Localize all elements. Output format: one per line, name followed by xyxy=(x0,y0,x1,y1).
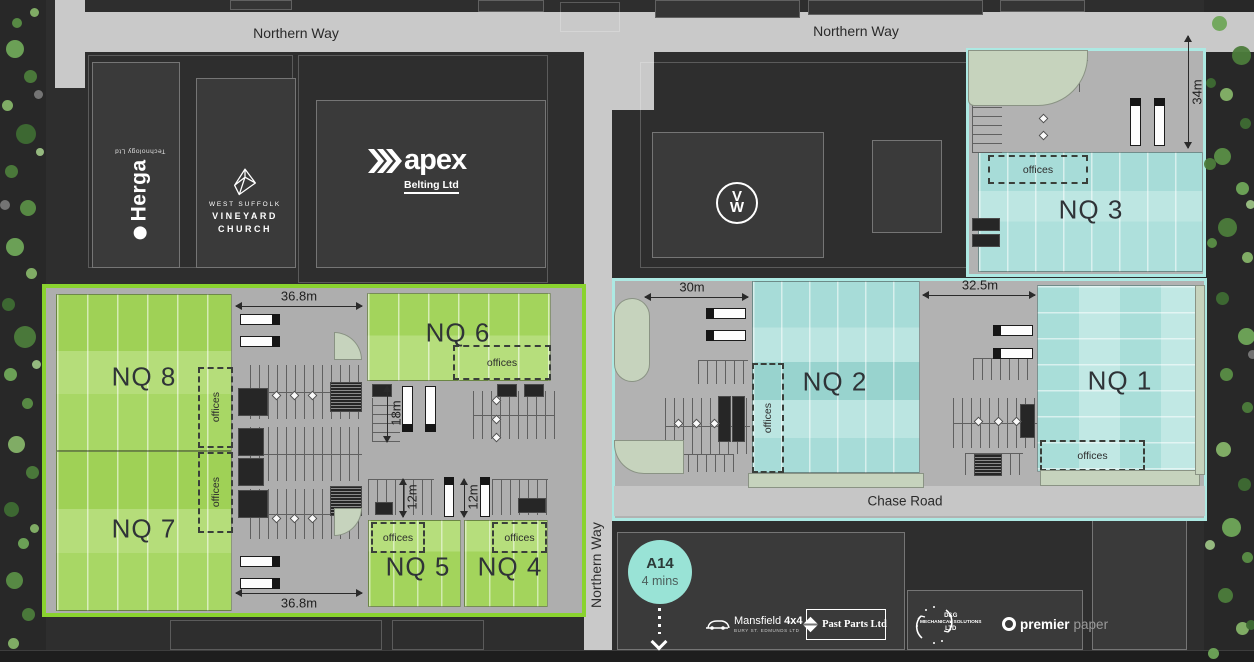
building-unnamed xyxy=(872,140,942,233)
mansfield-name: Mansfield xyxy=(734,615,781,627)
unit-nq3-offices-label: offices xyxy=(1023,164,1053,176)
landscape-area xyxy=(748,473,924,488)
unit-nq2-label: NQ 2 xyxy=(803,367,868,398)
unit-nq7-offices-label: offices xyxy=(210,477,222,507)
dim-nq4-yard: 12m xyxy=(466,484,481,509)
tree-icon xyxy=(1206,78,1216,88)
tree-icon xyxy=(34,90,43,99)
truck-cab xyxy=(425,424,436,432)
mansfield-subtitle: BURY ST. EDMUNDS LTD xyxy=(734,628,803,633)
tree-icon xyxy=(1242,552,1253,563)
tree-icon xyxy=(1222,518,1241,537)
parking-shelter xyxy=(238,388,268,416)
plot-outline xyxy=(478,0,544,12)
tree-icon xyxy=(2,100,13,111)
herga-icon xyxy=(133,226,146,239)
vw-logo: V W xyxy=(716,182,758,224)
tree-icon xyxy=(1220,368,1233,381)
truck-icon xyxy=(444,477,454,517)
bottom-edge xyxy=(0,650,1254,662)
road-stub-left xyxy=(55,0,85,88)
unit-nq2-offices-label: offices xyxy=(762,403,774,433)
tree-icon xyxy=(8,638,19,649)
truck-cab xyxy=(706,308,714,319)
tree-icon xyxy=(32,360,41,369)
road-label-northern-way-left: Northern Way xyxy=(253,25,339,41)
tree-icon xyxy=(30,8,39,17)
unit-nq5-offices: offices xyxy=(371,522,425,553)
tree-icon xyxy=(1238,478,1251,491)
plot-outline xyxy=(808,0,983,15)
dim-nq8-frontage: 36.8m xyxy=(281,289,317,304)
parking-shelter xyxy=(732,396,745,442)
past-parts-name: Past Parts Ltd xyxy=(822,619,887,630)
apex-chevrons-icon xyxy=(368,148,402,174)
dim-line-nq7-frontage xyxy=(236,593,362,594)
vw-monogram-w: W xyxy=(730,203,744,214)
dg-line1: D&G xyxy=(944,613,957,619)
tree-icon xyxy=(1216,292,1229,305)
parking-shelter xyxy=(718,396,731,442)
parking-shelter xyxy=(518,498,546,513)
tree-icon xyxy=(1242,252,1253,263)
tree-icon xyxy=(8,436,25,453)
plot-outline xyxy=(560,2,620,32)
tree-icon xyxy=(1232,46,1251,65)
truck-icon xyxy=(480,477,490,517)
parking-shelter xyxy=(238,428,264,456)
tree-icon xyxy=(6,238,24,256)
premier-paper-icon xyxy=(1002,617,1016,631)
dim-nq2-frontage: 30m xyxy=(679,280,704,295)
truck-cab xyxy=(402,424,413,432)
truck-icon xyxy=(240,578,280,589)
parking-shelter xyxy=(375,502,393,515)
plot-outline xyxy=(392,620,484,650)
truck-cab xyxy=(444,477,454,485)
plot-outline xyxy=(1000,0,1085,12)
tree-icon xyxy=(1242,402,1253,413)
tree-icon xyxy=(20,200,36,216)
landscape-area xyxy=(614,298,650,382)
tree-icon xyxy=(24,70,37,83)
tree-icon xyxy=(1238,328,1254,345)
truck-cab xyxy=(1130,98,1141,106)
tree-icon xyxy=(18,538,29,549)
unit-nq3-label: NQ 3 xyxy=(1059,195,1124,226)
parking-shelter xyxy=(974,454,1002,476)
unit-nq8-offices-label: offices xyxy=(210,392,222,422)
dim-nq7-frontage: 36.8m xyxy=(281,596,317,611)
past-parts-diamond-icon xyxy=(803,617,819,633)
truck-icon xyxy=(706,308,746,319)
parking-shelter xyxy=(972,234,1000,247)
vineyard-church-line2: VINEYARD xyxy=(212,211,278,221)
parking-bays xyxy=(473,391,555,439)
tree-icon xyxy=(1214,148,1231,165)
parking-shelter xyxy=(497,384,517,397)
tree-icon xyxy=(6,572,23,589)
parking-shelter xyxy=(972,218,1000,231)
a14-badge: A14 4 mins xyxy=(628,540,692,604)
dim-line-nq1-frontage xyxy=(923,295,1035,296)
dim-line-nq2-frontage xyxy=(645,297,748,298)
truck-cab xyxy=(993,348,1001,359)
tree-icon xyxy=(6,40,24,58)
landscape-area xyxy=(1195,285,1205,475)
a14-label: A14 xyxy=(646,555,674,574)
a14-time: 4 mins xyxy=(642,574,679,590)
unit-nq6-offices-label: offices xyxy=(487,357,517,369)
truck-icon xyxy=(1154,98,1165,146)
dg-line2: MECHANICAL SOLUTIONS xyxy=(920,620,981,625)
parking-shelter xyxy=(238,490,268,518)
vineyard-church-logo: WEST SUFFOLK VINEYARD CHURCH xyxy=(194,168,296,264)
tree-icon xyxy=(2,298,15,311)
vineyard-church-line3: CHURCH xyxy=(218,224,272,234)
tree-icon xyxy=(16,124,36,144)
road-label-chase: Chase Road xyxy=(867,494,942,509)
unit-nq4-offices-label: offices xyxy=(504,532,534,544)
parking-shelter xyxy=(1020,404,1035,438)
parking-bays xyxy=(973,358,1031,380)
unit-nq4-offices: offices xyxy=(492,522,547,553)
parking-bays xyxy=(698,360,748,384)
parking-bays xyxy=(250,427,362,481)
truck-icon xyxy=(425,386,436,432)
truck-icon xyxy=(993,348,1033,359)
apex-name: apex xyxy=(404,146,466,175)
a14-dotted-line xyxy=(658,608,661,634)
mansfield-logo: Mansfield 4x4 BURY ST. EDMUNDS LTD xyxy=(704,611,808,637)
tree-icon xyxy=(1246,620,1254,630)
unit-nq3-offices: offices xyxy=(988,155,1088,184)
tree-icon xyxy=(1236,182,1249,195)
dg-line3: LTD xyxy=(945,626,956,632)
truck-icon xyxy=(1130,98,1141,146)
tree-icon xyxy=(36,148,44,156)
truck-icon xyxy=(993,325,1033,336)
herga-name: Herga xyxy=(128,159,152,221)
mansfield-car-icon xyxy=(704,617,730,631)
premier-paper-logo: premierpaper xyxy=(1002,613,1086,635)
unit-nq2-offices: offices xyxy=(752,363,784,473)
unit-nq1-offices-label: offices xyxy=(1077,450,1107,462)
unit-nq1-label: NQ 1 xyxy=(1088,366,1153,397)
site-plan-canvas: Northern Way Northern Way Northern Way C… xyxy=(0,0,1254,662)
road-label-northern-way-right: Northern Way xyxy=(813,23,899,39)
truck-cab xyxy=(272,314,280,325)
truck-cab xyxy=(272,336,280,347)
unit-nq8-label: NQ 8 xyxy=(112,362,177,393)
dim-nq6-yard: 18m xyxy=(389,400,404,425)
unit-nq5-label: NQ 5 xyxy=(386,552,451,583)
truck-cab xyxy=(993,325,1001,336)
unit-nq5-offices-label: offices xyxy=(383,532,413,544)
tree-icon xyxy=(1204,158,1216,170)
road-northern-way-top xyxy=(55,12,1254,52)
tree-icon xyxy=(1205,540,1215,550)
apex-subtitle: Belting Ltd xyxy=(404,179,459,194)
apex-logo: apex Belting Ltd xyxy=(368,146,488,194)
vineyard-church-line1: WEST SUFFOLK xyxy=(209,201,281,208)
unit-nq7-label: NQ 7 xyxy=(112,514,177,545)
herga-logo: Herga Technology Ltd xyxy=(96,128,184,258)
plot-outline xyxy=(230,0,292,10)
truck-icon xyxy=(240,556,280,567)
tree-icon xyxy=(1220,88,1233,101)
dim-line-nq8-frontage xyxy=(236,306,362,307)
truck-cab xyxy=(272,578,280,589)
truck-cab xyxy=(272,556,280,567)
tree-icon xyxy=(5,165,18,178)
truck-cab xyxy=(1154,98,1165,106)
unit-nq6-label: NQ 6 xyxy=(426,318,491,349)
vineyard-church-star-icon xyxy=(231,168,259,198)
tree-icon xyxy=(1240,118,1251,129)
tree-icon xyxy=(30,524,39,533)
tree-icon xyxy=(4,368,17,381)
tree-icon xyxy=(22,608,35,621)
road-label-northern-way-vertical: Northern Way xyxy=(588,478,604,608)
mansfield-name-bold: 4x4 xyxy=(784,615,802,627)
unit-nq4-label: NQ 4 xyxy=(478,552,543,583)
herga-subtitle: Technology Ltd xyxy=(115,147,166,154)
premier-name-bold: premier xyxy=(1020,617,1070,632)
tree-icon xyxy=(1207,238,1217,248)
truck-cab xyxy=(706,330,714,341)
tree-icon xyxy=(0,200,10,210)
truck-icon xyxy=(706,330,746,341)
unit-nq6-offices: offices xyxy=(453,345,551,380)
parking-shelter xyxy=(238,458,264,486)
landscape-area xyxy=(1040,470,1200,486)
dim-nq3-depth: 34m xyxy=(1190,79,1205,104)
tree-icon xyxy=(14,326,36,348)
parking-shelter xyxy=(330,382,362,412)
truck-icon xyxy=(240,314,280,325)
plot-outline xyxy=(170,620,382,650)
dim-nq5-yard: 12m xyxy=(405,484,420,509)
tree-icon xyxy=(26,466,39,479)
unit-nq1-offices: offices xyxy=(1040,440,1145,471)
truck-cab xyxy=(480,477,490,485)
past-parts-logo: Past Parts Ltd xyxy=(806,609,886,640)
tree-icon xyxy=(1248,350,1254,359)
tree-icon xyxy=(4,502,19,517)
unit-nq7-offices: offices xyxy=(198,452,233,533)
truck-icon xyxy=(402,386,413,432)
dg-mechanical-logo: D&G MECHANICAL SOLUTIONS LTD xyxy=(912,602,1000,646)
parking-shelter xyxy=(524,384,544,397)
tree-icon xyxy=(1218,218,1237,237)
tree-icon xyxy=(22,398,33,409)
tree-icon xyxy=(12,18,22,28)
premier-name-light: paper xyxy=(1074,617,1109,632)
tree-icon xyxy=(1208,648,1219,659)
tree-icon xyxy=(1216,442,1231,457)
truck-icon xyxy=(240,336,280,347)
dim-nq1-frontage: 32.5m xyxy=(962,278,998,293)
plot-outline xyxy=(655,0,800,18)
tree-icon xyxy=(1212,16,1227,31)
tree-icon xyxy=(26,268,37,279)
tree-icon xyxy=(1218,588,1233,603)
unit-nq8-offices: offices xyxy=(198,367,233,448)
tree-icon xyxy=(1246,200,1254,209)
